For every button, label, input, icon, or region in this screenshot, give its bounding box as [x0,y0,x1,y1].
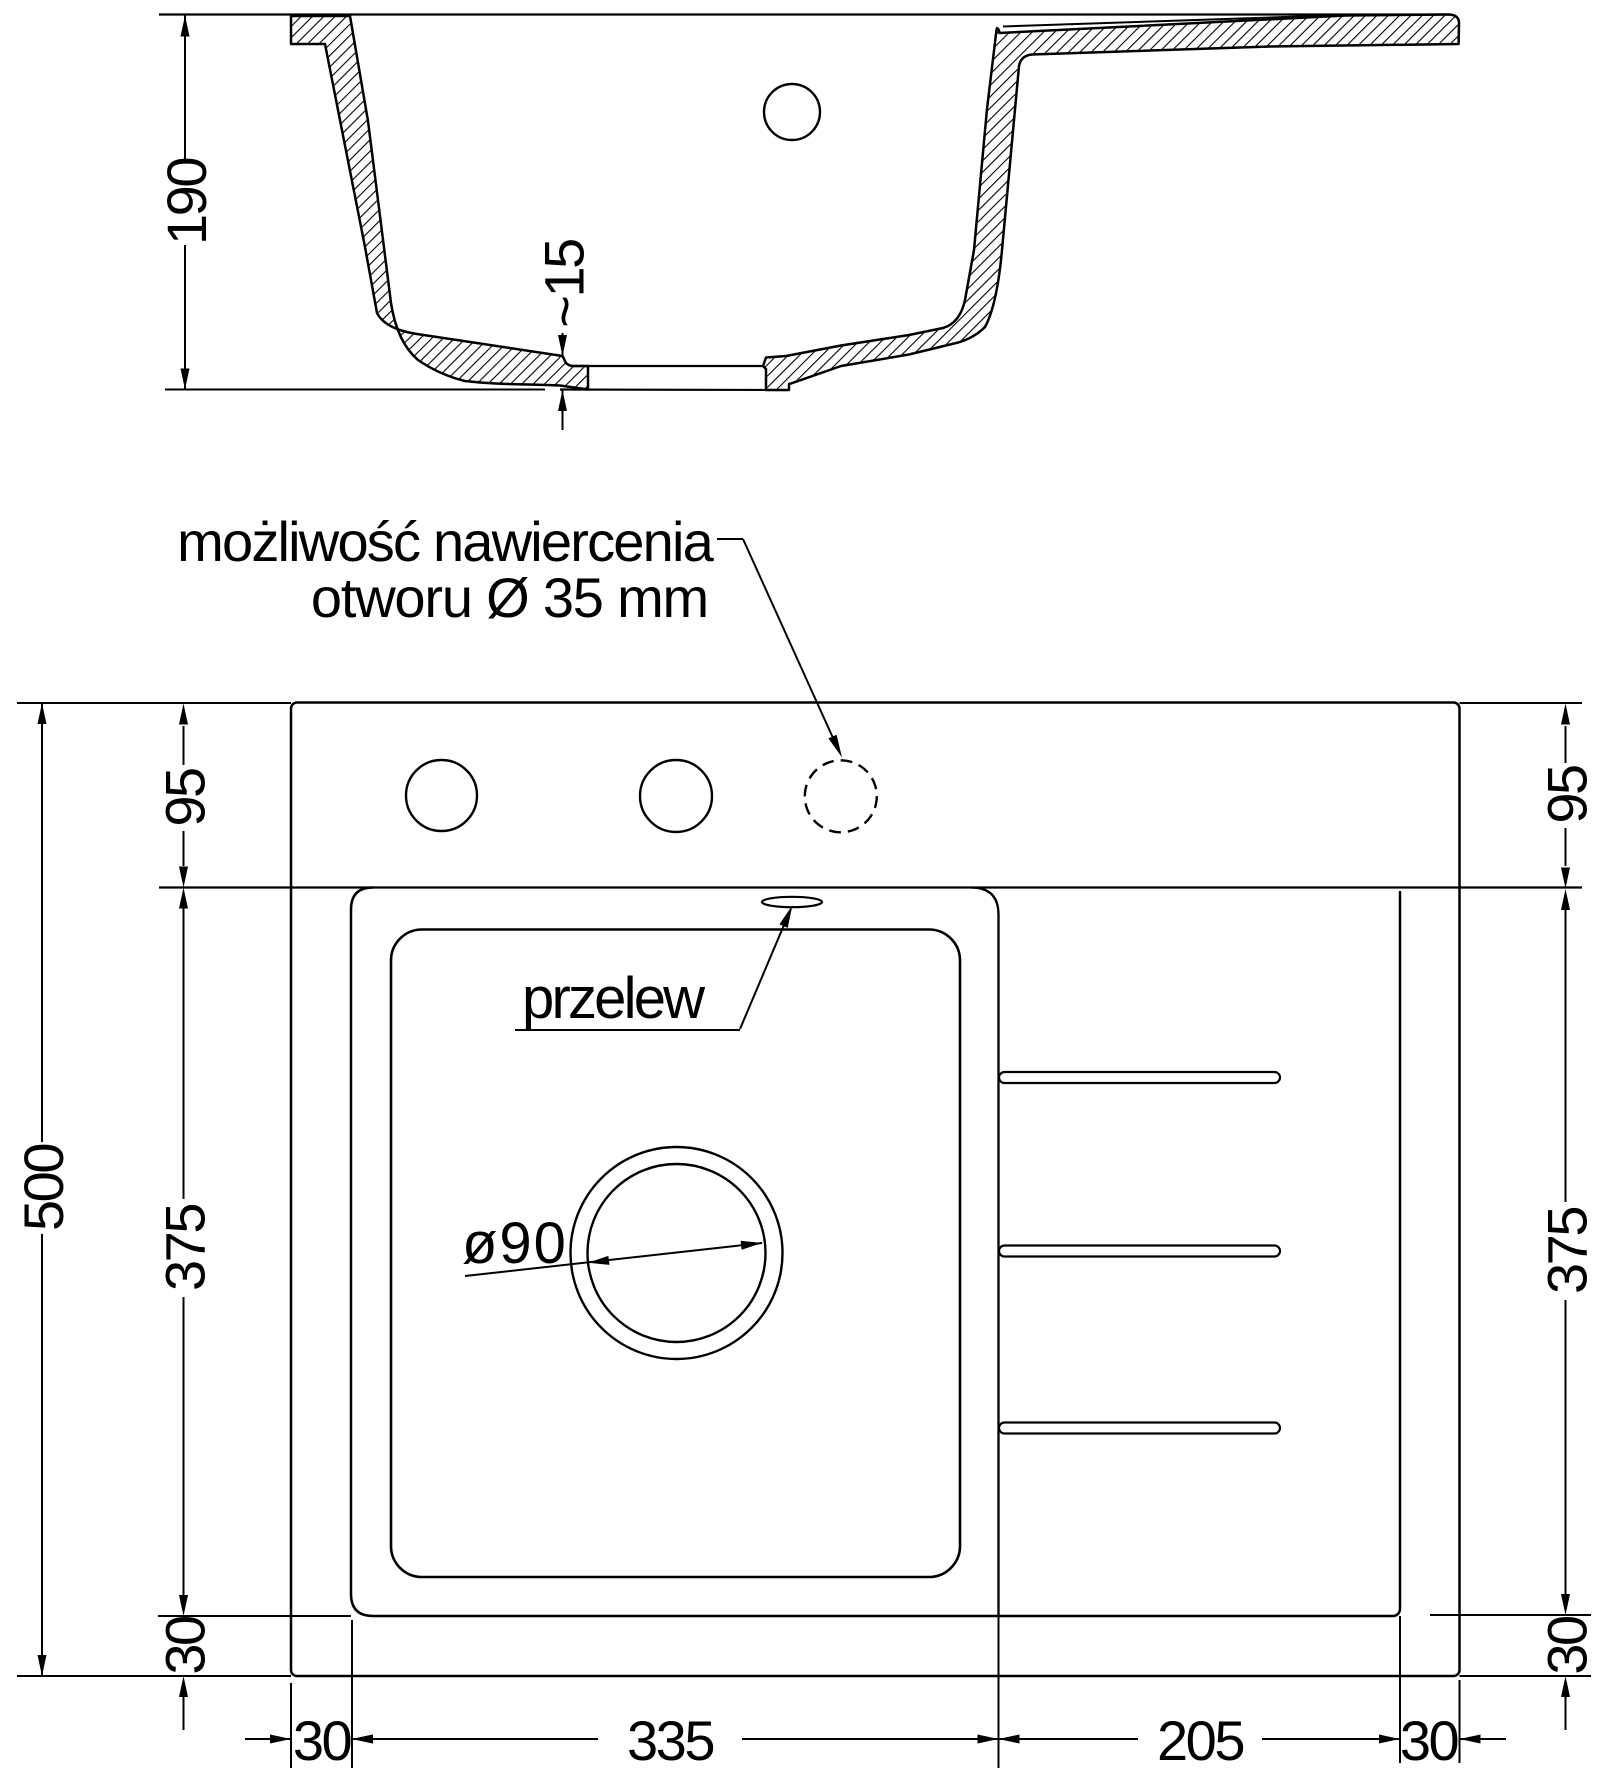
svg-text:przelew: przelew [522,966,706,1031]
svg-text:możliwość nawiercenia: możliwość nawiercenia [177,510,715,573]
svg-text:205: 205 [1157,1709,1243,1772]
svg-text:500: 500 [12,1145,75,1231]
svg-text:95: 95 [154,769,217,827]
svg-text:375: 375 [154,1205,217,1291]
svg-text:otworu Ø 35 mm: otworu Ø 35 mm [311,566,708,629]
svg-text:~15: ~15 [533,240,596,328]
svg-text:30: 30 [154,1617,217,1675]
svg-text:30: 30 [1400,1709,1458,1772]
svg-text:95: 95 [1536,766,1599,824]
svg-text:335: 335 [627,1709,713,1772]
svg-text:375: 375 [1536,1208,1599,1294]
svg-text:190: 190 [155,159,218,245]
svg-text:30: 30 [293,1709,351,1772]
svg-text:30: 30 [1536,1617,1599,1675]
